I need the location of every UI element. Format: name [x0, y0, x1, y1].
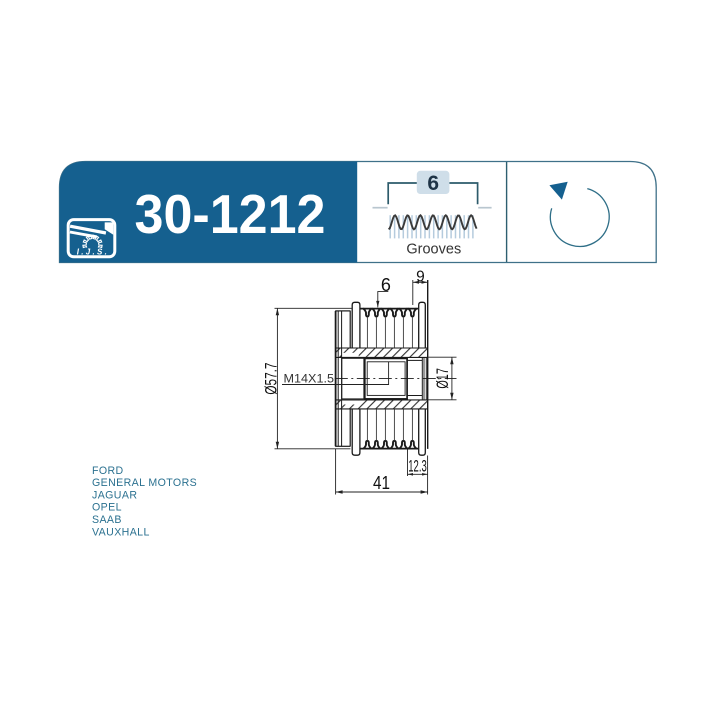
svg-text:41: 41: [373, 472, 390, 493]
svg-text:FORD: FORD: [92, 465, 124, 477]
svg-text:I.J.S.: I.J.S.: [77, 248, 107, 257]
svg-text:Grooves: Grooves: [406, 242, 461, 258]
svg-text:VAUXHALL: VAUXHALL: [92, 526, 150, 538]
svg-text:6: 6: [381, 275, 391, 295]
svg-text:GENERAL MOTORS: GENERAL MOTORS: [92, 477, 197, 489]
svg-text:9: 9: [416, 268, 425, 285]
svg-text:OPEL: OPEL: [92, 502, 122, 514]
svg-text:SAAB: SAAB: [92, 514, 122, 526]
svg-text:M14X1.5: M14X1.5: [284, 371, 335, 385]
svg-text:Ø17: Ø17: [433, 368, 452, 389]
svg-text:30-1212: 30-1212: [135, 183, 326, 245]
svg-text:Ø57.7: Ø57.7: [261, 363, 280, 395]
svg-text:6: 6: [427, 172, 439, 195]
svg-text:12.3: 12.3: [408, 457, 427, 476]
svg-text:JAGUAR: JAGUAR: [92, 489, 137, 501]
